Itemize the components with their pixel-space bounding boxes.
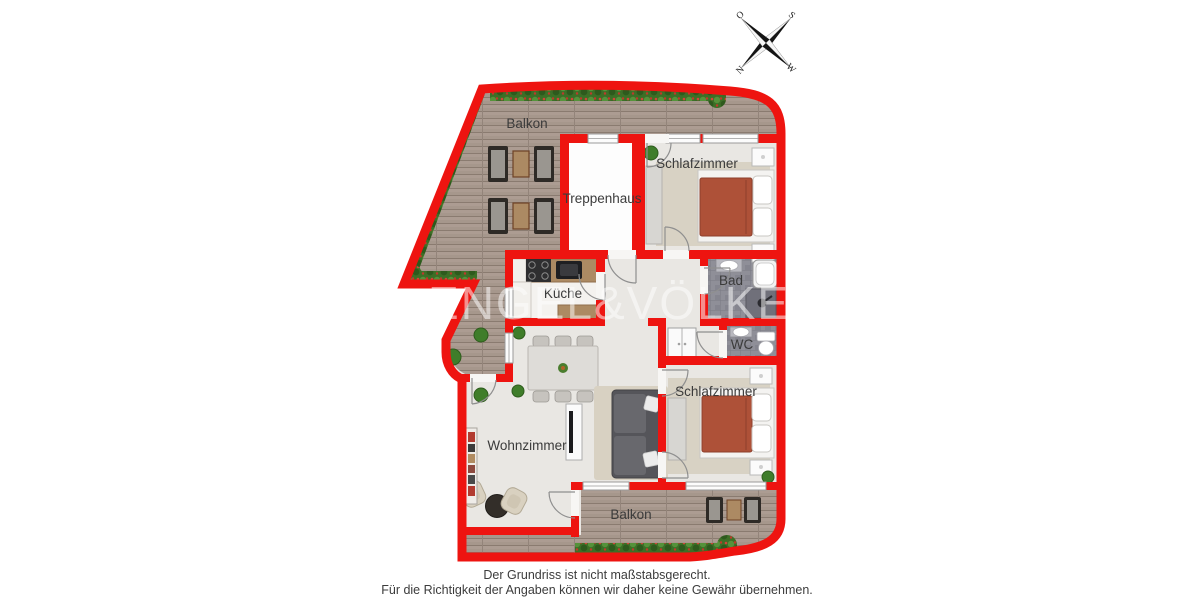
floor-plan-image: Balkon Treppenhaus Schlafzimmer Küche Ba…: [0, 0, 1200, 600]
wardrobe-icon: [646, 166, 662, 244]
window-icon: [505, 333, 513, 363]
disclaimer: Der Grundriss ist nicht maßstabsgerecht.…: [381, 568, 813, 597]
window-icon: [686, 482, 766, 490]
brand-watermark: ENGEL&VÖLKERS: [428, 277, 858, 329]
balcony-bottom-seating: [706, 497, 761, 523]
tv-board-icon: [566, 404, 582, 460]
window-icon: [588, 134, 618, 143]
closet-icon: [668, 328, 696, 360]
window-icon: [666, 134, 700, 143]
room-label-bedroom-top: Schlafzimmer: [656, 156, 738, 171]
bookshelf-icon: [466, 428, 477, 504]
sink-icon: [720, 261, 738, 271]
compass-letter-w: W: [784, 62, 797, 75]
window-icon: [703, 134, 758, 143]
compass-rose-icon: O S N W: [735, 10, 797, 77]
compass-letter-o: O: [735, 10, 747, 22]
disclaimer-line-1: Der Grundriss ist nicht maßstabsgerecht.: [483, 568, 710, 582]
plant-icon: [762, 471, 774, 483]
compass-letter-s: S: [786, 10, 797, 21]
wardrobe-icon: [668, 398, 686, 460]
dining-set: [528, 336, 598, 402]
room-label-balcony-top: Balkon: [506, 116, 547, 131]
room-label-bedroom-bottom: Schlafzimmer: [675, 384, 757, 399]
compass-letter-n: N: [735, 65, 747, 77]
disclaimer-line-2: Für die Richtigkeit der Angaben können w…: [381, 583, 813, 597]
room-label-staircase: Treppenhaus: [562, 191, 641, 206]
sofa-icon: [612, 390, 664, 478]
window-icon: [583, 482, 629, 490]
room-label-living-room: Wohnzimmer: [487, 438, 567, 453]
room-label-balcony-bottom: Balkon: [610, 507, 651, 522]
outdoor-table-icon: [727, 500, 741, 520]
room-label-wc: WC: [731, 337, 754, 352]
floor-plan-page: Balkon Treppenhaus Schlafzimmer Küche Ba…: [0, 0, 1200, 600]
